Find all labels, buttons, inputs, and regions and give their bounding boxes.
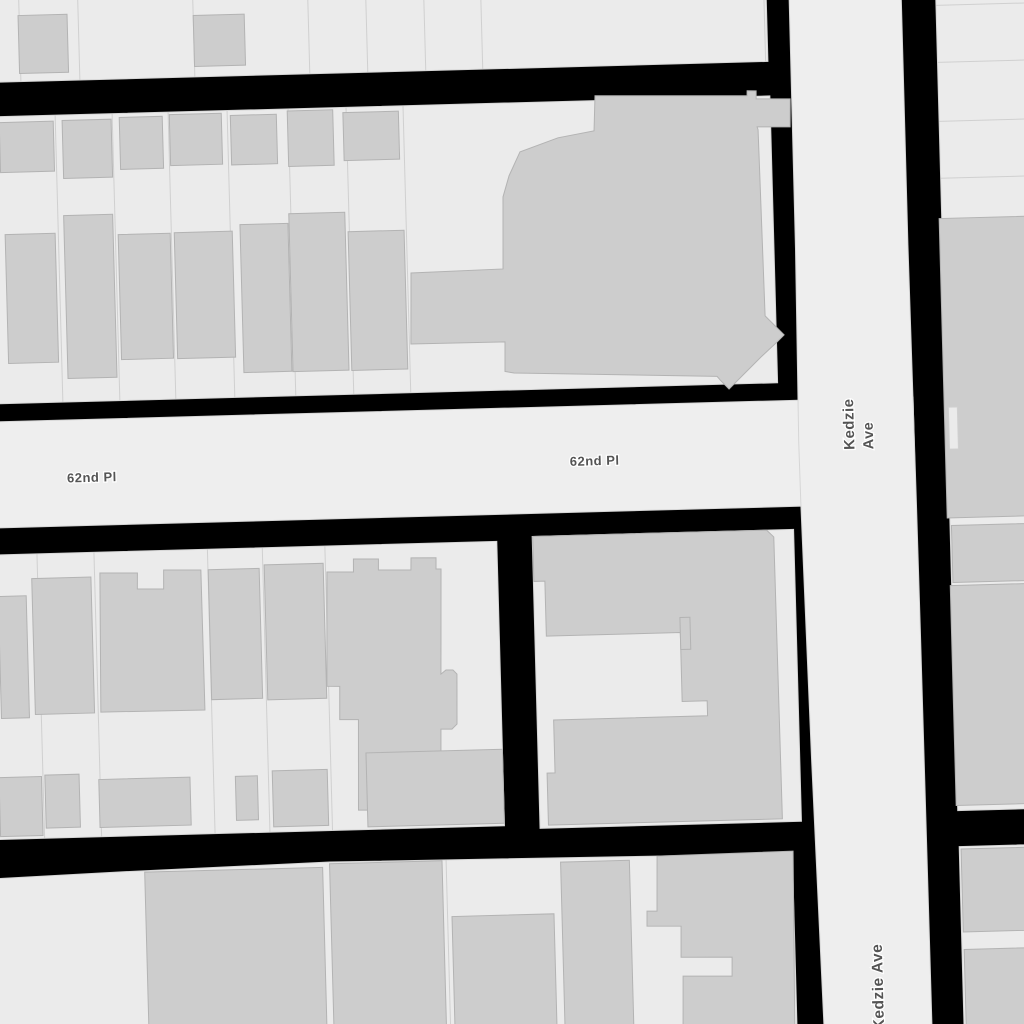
svg-text:62nd Pl: 62nd Pl [67, 469, 117, 485]
svg-text:Kedzie Ave: Kedzie Ave [869, 944, 888, 1024]
svg-text:62nd Pl: 62nd Pl [570, 453, 620, 469]
svg-text:Kedzie: Kedzie [840, 398, 858, 450]
svg-text:Ave: Ave [861, 422, 878, 450]
